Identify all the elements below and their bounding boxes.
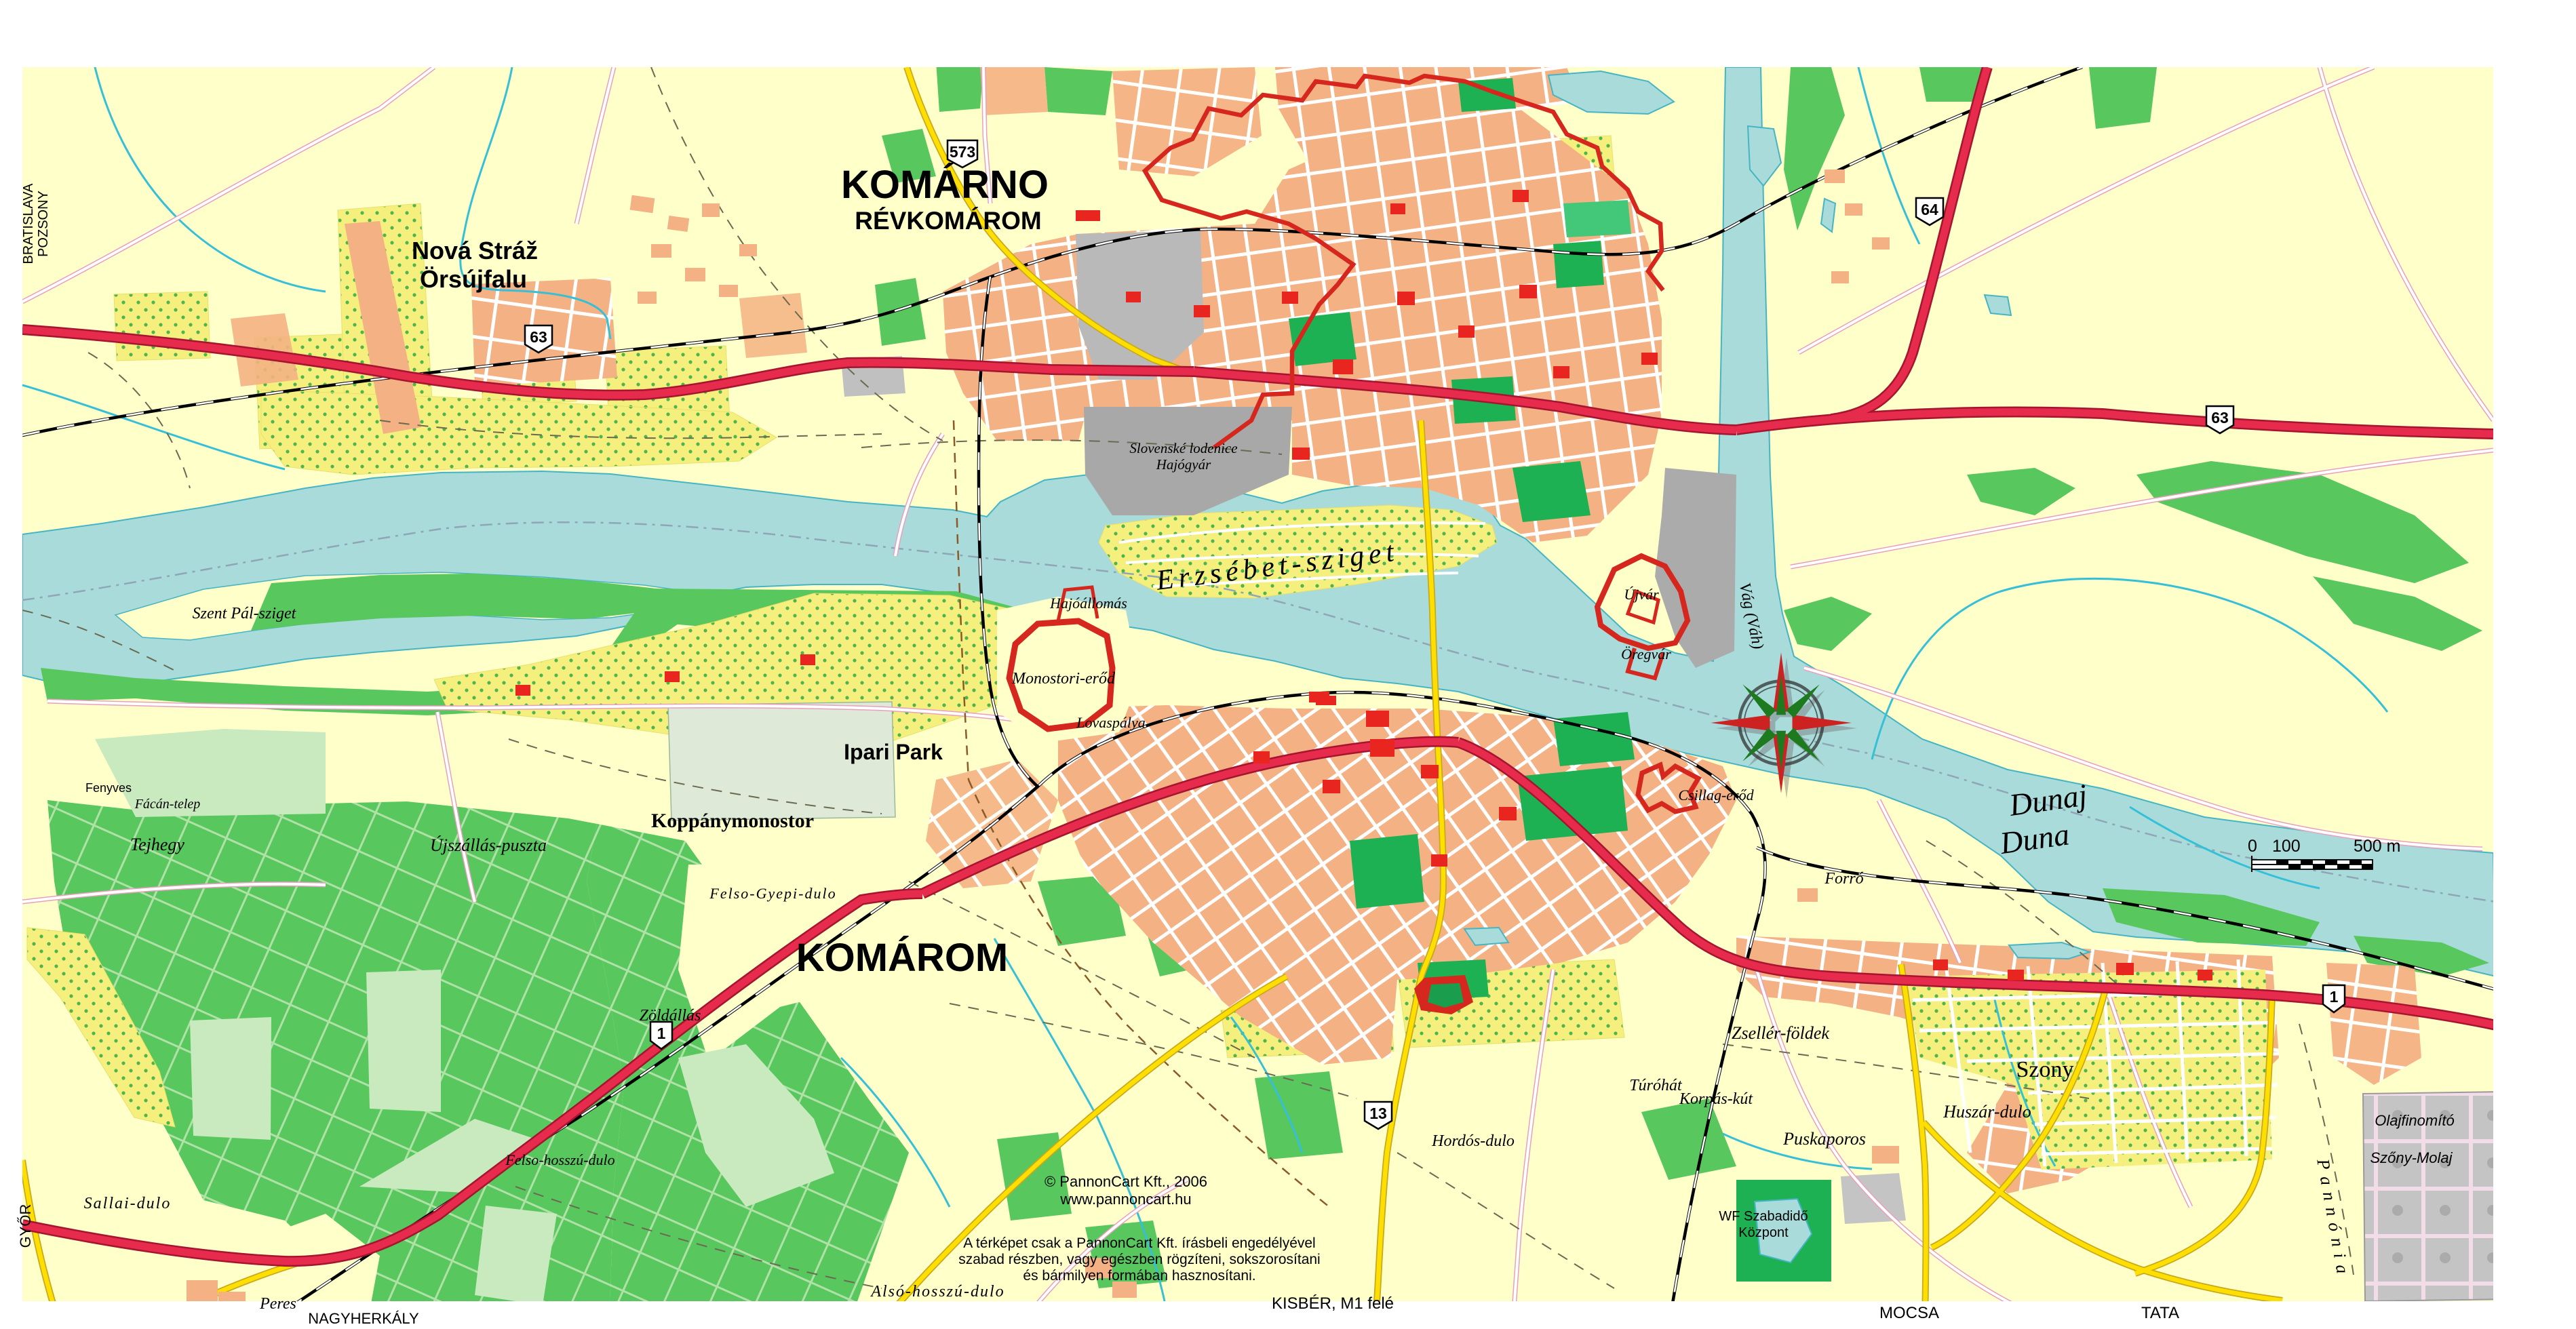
svg-text:BRATISLAVA: BRATISLAVA — [21, 183, 36, 264]
svg-text:NAGYHERKÁLY: NAGYHERKÁLY — [308, 1310, 419, 1327]
svg-text:Hajógyár: Hajógyár — [1156, 456, 1211, 473]
svg-text:Fenyves: Fenyves — [85, 781, 132, 795]
svg-text:www.pannoncart.hu: www.pannoncart.hu — [1059, 1191, 1191, 1208]
svg-text:szabad részben, vagy egészben: szabad részben, vagy egészben rögzíteni,… — [958, 1252, 1320, 1267]
svg-text:Peres: Peres — [259, 1295, 296, 1313]
svg-text:Ipari Park: Ipari Park — [844, 740, 943, 764]
svg-text:TATA: TATA — [2141, 1304, 2179, 1322]
svg-text:KOMÁROM: KOMÁROM — [796, 936, 1009, 980]
svg-text:Felso-hosszú-dulo: Felso-hosszú-dulo — [505, 1151, 614, 1168]
svg-text:Öregvár: Öregvár — [1621, 646, 1671, 662]
svg-text:63: 63 — [2211, 409, 2229, 427]
svg-text:Alsó-hosszú-dulo: Alsó-hosszú-dulo — [870, 1283, 1004, 1301]
svg-text:© PannonCart Kft., 2006: © PannonCart Kft., 2006 — [1045, 1173, 1207, 1190]
svg-text:13: 13 — [1369, 1105, 1387, 1122]
svg-text:Örsújfalu: Örsújfalu — [420, 265, 527, 293]
svg-text:GYŐR: GYŐR — [17, 1204, 34, 1248]
svg-text:KISBÉR, M1 felé: KISBÉR, M1 felé — [1272, 1294, 1394, 1313]
svg-text:Lovaspálya: Lovaspálya — [1076, 714, 1145, 731]
svg-text:63: 63 — [530, 328, 547, 346]
svg-text:POZSONY: POZSONY — [36, 191, 51, 257]
svg-text:és bármilyen formában hasznosí: és bármilyen formában hasznosítani. — [1023, 1268, 1255, 1284]
svg-text:Újszállás-puszta: Újszállás-puszta — [430, 835, 547, 855]
svg-text:Zsellér-földek: Zsellér-földek — [1732, 1023, 1829, 1043]
svg-text:MOCSA: MOCSA — [1879, 1304, 1939, 1322]
svg-text:Szony: Szony — [2016, 1057, 2074, 1082]
svg-text:Puskaporos: Puskaporos — [1782, 1129, 1866, 1149]
svg-text:Sallai-dulo: Sallai-dulo — [84, 1195, 172, 1212]
svg-text:1: 1 — [2330, 988, 2339, 1006]
svg-text:1: 1 — [657, 1025, 666, 1042]
svg-text:Szent Pál-sziget: Szent Pál-sziget — [193, 605, 297, 622]
svg-text:500 m: 500 m — [2354, 837, 2400, 856]
svg-text:Koppánymonostor: Koppánymonostor — [651, 810, 814, 832]
svg-text:0: 0 — [2248, 837, 2257, 856]
svg-text:Fácán-telep: Fácán-telep — [134, 797, 201, 812]
svg-text:Huszár-dulo: Huszár-dulo — [1943, 1102, 2031, 1122]
svg-text:Szőny-Molaj: Szőny-Molaj — [2370, 1149, 2453, 1166]
svg-text:100: 100 — [2272, 837, 2301, 856]
svg-text:WF Szabadidő: WF Szabadidő — [1719, 1209, 1808, 1224]
svg-text:Hordós-dulo: Hordós-dulo — [1431, 1132, 1515, 1150]
svg-text:Olajfinomító: Olajfinomító — [2375, 1112, 2454, 1129]
svg-text:Monostori-erőd: Monostori-erőd — [1011, 670, 1116, 688]
svg-text:Csillag-erőd: Csillag-erőd — [1678, 787, 1754, 804]
svg-text:A térképet csak a PannonCart K: A térképet csak a PannonCart Kft. írásbe… — [963, 1235, 1315, 1251]
svg-text:Tejhegy: Tejhegy — [130, 835, 184, 854]
svg-text:Slovenské lodenice: Slovenské lodenice — [1129, 440, 1237, 456]
svg-text:573: 573 — [950, 143, 975, 161]
svg-text:KOMÁRNO: KOMÁRNO — [841, 163, 1049, 207]
svg-text:Központ: Központ — [1738, 1225, 1789, 1240]
svg-text:64: 64 — [1921, 201, 1938, 218]
svg-text:Túróhát: Túróhát — [1629, 1077, 1683, 1094]
svg-text:Felso-Gyepi-dulo: Felso-Gyepi-dulo — [709, 885, 836, 902]
svg-text:Hajóállomás: Hajóállomás — [1049, 595, 1127, 612]
svg-text:RÉVKOMÁROM: RÉVKOMÁROM — [855, 207, 1041, 235]
svg-text:Újvár: Újvár — [1624, 586, 1659, 603]
svg-text:Forró: Forró — [1824, 870, 1863, 888]
svg-text:Nová Stráž: Nová Stráž — [412, 237, 538, 264]
svg-text:Korpás-kút: Korpás-kút — [1679, 1090, 1753, 1108]
